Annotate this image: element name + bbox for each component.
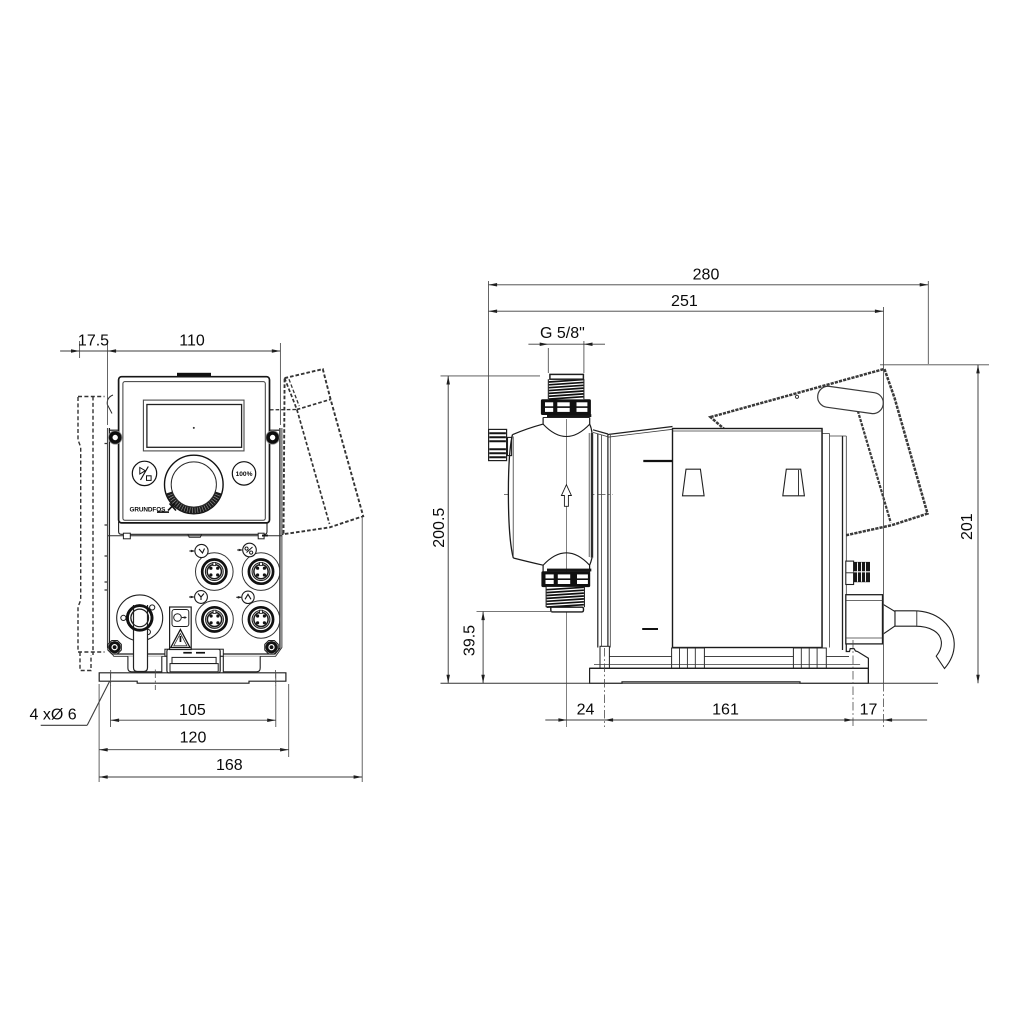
svg-text:17: 17 [860,702,878,719]
svg-text:280: 280 [693,267,720,284]
svg-text:39.5: 39.5 [462,625,479,656]
svg-text:201: 201 [959,513,976,540]
svg-text:G 5/8": G 5/8" [540,325,585,342]
svg-text:105: 105 [179,702,206,719]
svg-text:120: 120 [180,730,207,747]
svg-text:110: 110 [179,333,205,350]
svg-text:4 xØ 6: 4 xØ 6 [30,707,77,724]
svg-text:168: 168 [216,757,243,774]
svg-text:17.5: 17.5 [78,333,109,350]
svg-text:200.5: 200.5 [431,508,448,548]
svg-text:251: 251 [671,293,698,310]
svg-text:161: 161 [712,702,739,719]
svg-text:24: 24 [577,702,595,719]
svg-text:100%: 100% [236,471,253,478]
